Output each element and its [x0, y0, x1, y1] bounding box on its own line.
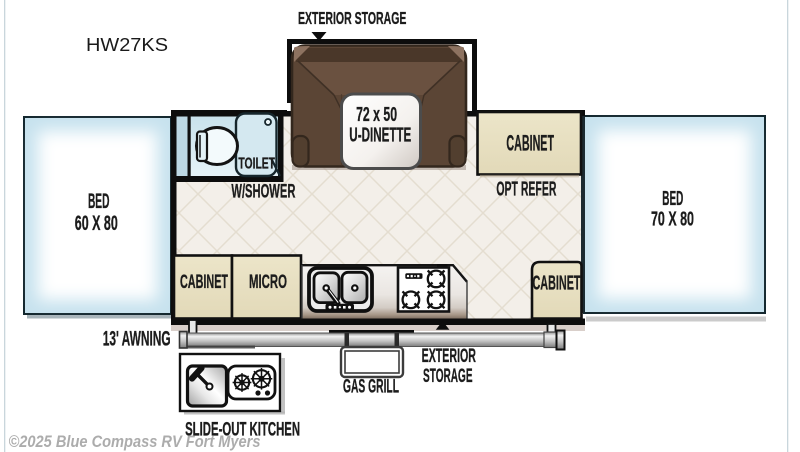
svg-text:MICRO: MICRO: [249, 272, 287, 293]
svg-text:HW27KS: HW27KS: [86, 34, 168, 55]
svg-text:CABINET: CABINET: [180, 272, 228, 293]
svg-text:EXTERIOR STORAGE: EXTERIOR STORAGE: [298, 8, 407, 28]
svg-text:©2025 Blue Compass RV Fort Mye: ©2025 Blue Compass RV Fort Myers: [9, 432, 261, 451]
svg-text:OPT REFER: OPT REFER: [496, 179, 556, 201]
svg-text:W/SHOWER: W/SHOWER: [231, 181, 295, 203]
svg-text:CABINET: CABINET: [506, 130, 554, 155]
svg-text:U-DINETTE: U-DINETTE: [349, 124, 411, 146]
svg-text:TOILET: TOILET: [238, 156, 275, 173]
svg-text:GAS GRILL: GAS GRILL: [343, 376, 399, 397]
svg-text:60 X 80: 60 X 80: [75, 212, 118, 235]
svg-text:BED: BED: [88, 190, 110, 213]
svg-text:STORAGE: STORAGE: [423, 365, 473, 387]
svg-text:13' AWNING: 13' AWNING: [103, 327, 171, 350]
svg-text:EXTERIOR: EXTERIOR: [422, 345, 476, 367]
svg-text:70 X 80: 70 X 80: [651, 207, 694, 230]
svg-text:72 x 50: 72 x 50: [356, 104, 397, 126]
svg-text:CABINET: CABINET: [533, 273, 581, 295]
